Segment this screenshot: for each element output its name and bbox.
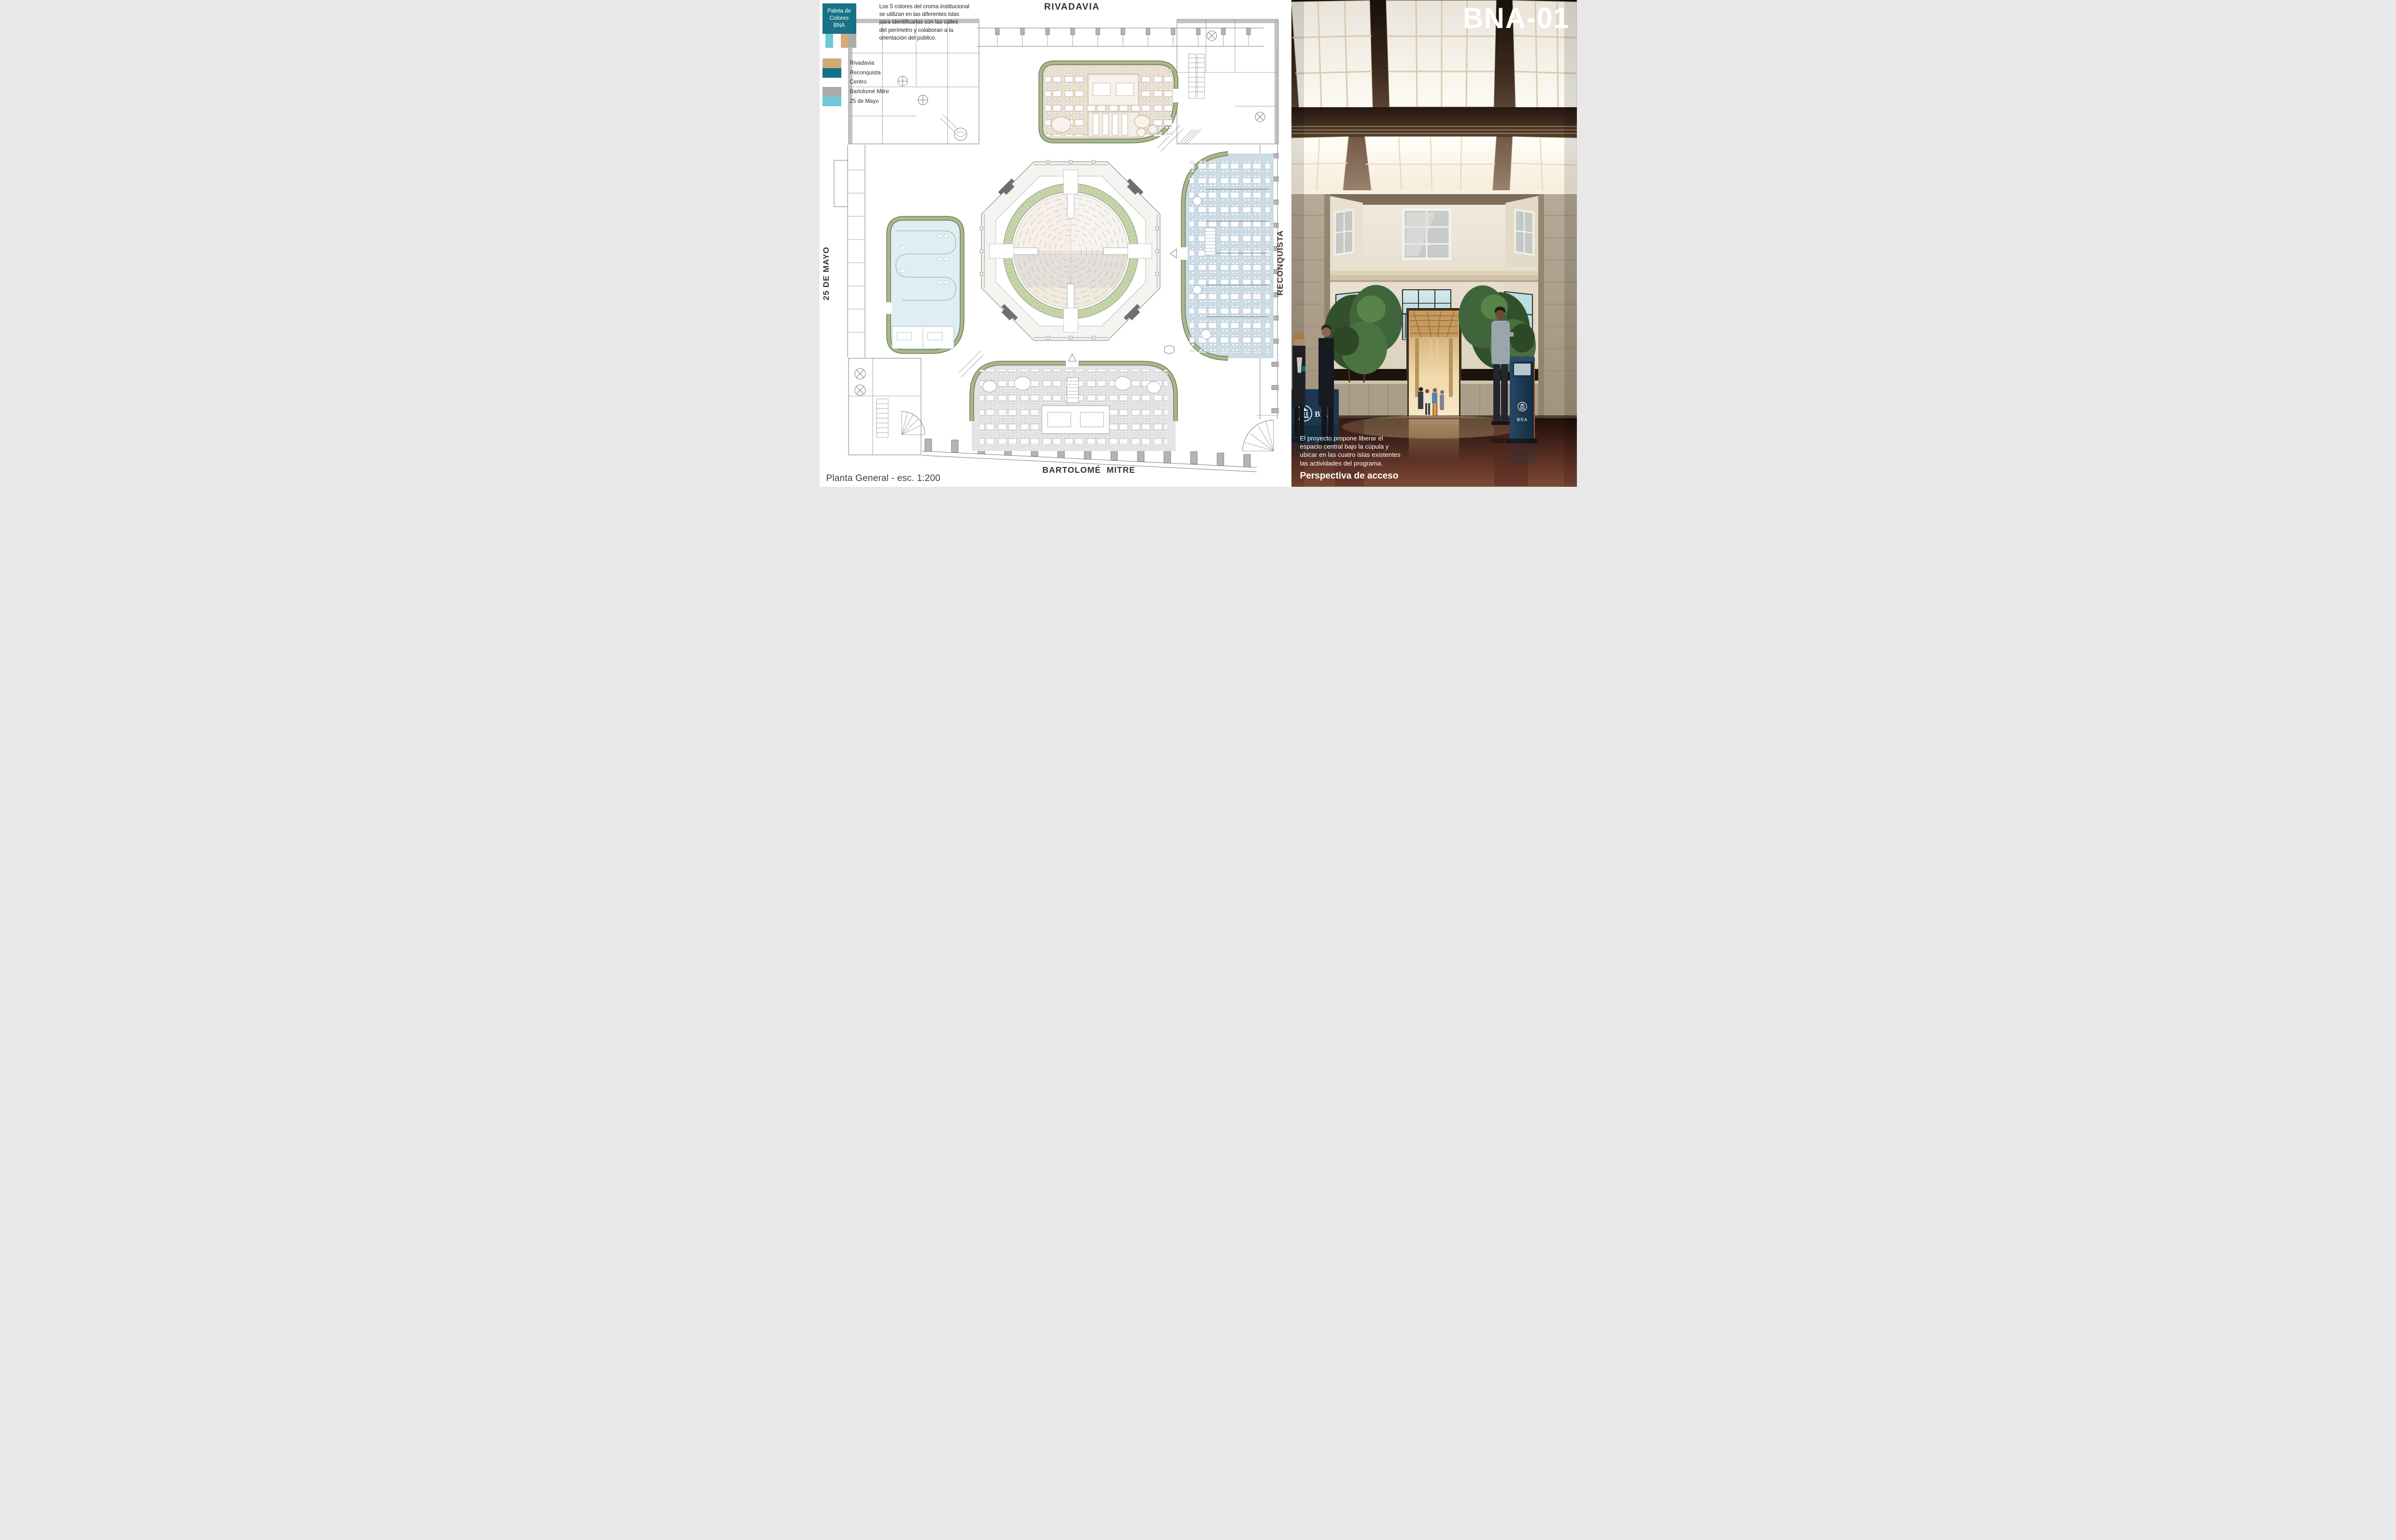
swatch-rivadavia (822, 58, 841, 68)
palette-list: Rivadavia Reconquista Centro Bartolomé M… (822, 58, 889, 106)
island-bartolome-mitre (972, 354, 1176, 451)
render-illustration: BNA (1291, 0, 1577, 487)
top-right-block (1177, 19, 1278, 144)
small-octagon-marker (1164, 345, 1174, 354)
swatch-25-de-mayo (822, 97, 841, 106)
sheet-code: BNA-01 (1463, 1, 1570, 35)
chip-rivadavia (841, 34, 849, 48)
palette-item-centro: Centro (822, 78, 889, 87)
swatch-label: Reconquista (850, 70, 881, 76)
upper-window (1515, 210, 1533, 255)
island-25-de-mayo (885, 218, 962, 352)
kiosk-screen (1514, 363, 1531, 376)
caption-heading: Perspectiva de acceso (1300, 471, 1401, 481)
chip-centro (833, 34, 841, 48)
fan-stair-icon (1243, 420, 1274, 451)
bottom-right-corner (1243, 415, 1277, 451)
fan-stair-icon (902, 411, 925, 435)
caption-line: espacio central bajo la cúpula y (1300, 442, 1401, 451)
caption-line: las actividades del programa. (1300, 459, 1401, 467)
swatch-label: Rivadavia (850, 60, 875, 66)
swatch-reconquista (822, 68, 841, 78)
bna-kiosk: BNA (1507, 356, 1538, 464)
upper-window (1404, 210, 1450, 259)
vignette (1564, 0, 1577, 487)
street-label-reconquista: RECONQUISTA (1276, 230, 1285, 296)
vignette (1291, 0, 1304, 487)
palette-title-box: Paleta de Colores BNA (822, 3, 856, 34)
entry-arrow (1068, 354, 1076, 361)
street-label-rivadavia: RIVADAVIA (1044, 2, 1100, 13)
caption-line: El proyecto propone liberar el (1300, 434, 1401, 442)
kiosk-text: BNA (1517, 417, 1527, 422)
photo-caption: El proyecto propone liberar el espacio c… (1300, 434, 1401, 481)
stair-icon (1067, 378, 1078, 403)
street-label-25-de-mayo: 25 DE MAYO (822, 247, 831, 300)
palette-item-25-de-mayo: 25 de Mayo (822, 97, 889, 106)
island-rivadavia (1041, 63, 1181, 141)
cornice (1323, 267, 1545, 282)
swatch-centro (822, 78, 841, 87)
chip-25-de-mayo (825, 34, 833, 48)
palette-item-rivadavia: Rivadavia (822, 58, 889, 68)
elevator-icon (855, 385, 865, 396)
swatch-label: Bartolomé Mitre (850, 89, 889, 95)
central-dome (958, 125, 1183, 377)
caption-line: ubicar en las cuatro islas existentes (1300, 451, 1401, 459)
elevator-icon (1255, 112, 1265, 122)
stair-icon (877, 399, 888, 438)
bottom-left-block (849, 358, 925, 455)
color-palette-legend: Paleta de Colores BNA Los 5 colores del … (820, 0, 979, 111)
palette-title-line: Paleta de (822, 8, 856, 15)
palette-description: Los 5 colores del croma institucional se… (879, 2, 974, 42)
island-reconquista (1170, 154, 1274, 358)
stone-planter-left (1330, 381, 1407, 421)
palette-item-bartolome-mitre: Bartolomé Mitre (822, 87, 889, 97)
palette-title-line: Colores (822, 15, 856, 22)
upper-window (1335, 210, 1353, 255)
escalator-icon (1189, 54, 1205, 99)
chip-bartolome-mitre (849, 34, 856, 48)
presentation-board: Paleta de Colores BNA Los 5 colores del … (820, 0, 1577, 487)
palette-item-reconquista: Reconquista (822, 68, 889, 78)
entrance-portal (1406, 308, 1461, 426)
swatch-bartolome-mitre (822, 87, 841, 97)
plan-caption: Planta General - esc. 1:200 (826, 473, 941, 484)
swatch-label: 25 de Mayo (850, 99, 879, 104)
elevator-icon (1207, 31, 1217, 41)
elevator-icon (855, 368, 865, 379)
street-label-bartolome-mitre: BARTOLOMÉ MITRE (1042, 465, 1135, 475)
swatch-label: Centro (850, 79, 867, 85)
stair-icon (1205, 228, 1216, 255)
floor-plan-panel: Paleta de Colores BNA Los 5 colores del … (820, 0, 1291, 487)
render-panel: BNA (1291, 0, 1577, 487)
palette-title-line: BNA (822, 22, 856, 29)
entry-arrow (1170, 249, 1177, 258)
palette-chips (825, 34, 856, 48)
circular-stair-icon (954, 128, 967, 141)
